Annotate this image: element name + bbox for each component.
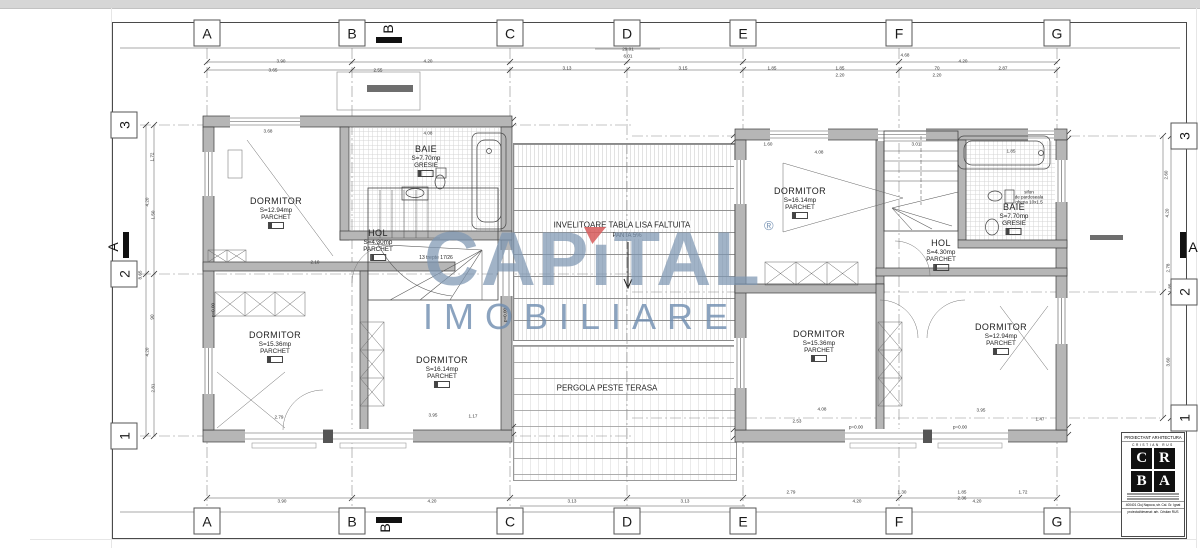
section-marker-a-left: A: [105, 242, 121, 251]
section-bar-left: [123, 232, 129, 258]
titleblock-microtext: [1126, 493, 1180, 500]
logo-letter-a: A: [1154, 471, 1175, 492]
section-marker-b-bottom: B: [377, 523, 393, 532]
logo-letter-r: R: [1154, 448, 1175, 469]
stairs-right: [884, 131, 958, 231]
watermark-cap-left: CAP: [424, 217, 590, 302]
crba-logo: C R B A: [1131, 448, 1175, 492]
section-bar-bottom: [376, 517, 402, 523]
section-marker-a-right: A: [1188, 239, 1197, 255]
section-bar-top: [376, 37, 402, 43]
titleblock-architect-name: CRISTIAN RUS: [1122, 443, 1184, 447]
title-block: PROIECTANT ARHITECTURA CRISTIAN RUS C R …: [1121, 432, 1185, 537]
section-marker-b-top: B: [380, 24, 396, 33]
registered-trademark-icon: ®: [764, 218, 774, 233]
floor-plan-sheet: 29.016.013.904.203.133.153.652.554.684.2…: [0, 0, 1200, 554]
titleblock-address: 400401 Cluj Napoca, str. Cal. Gr. Ignat: [1122, 501, 1184, 507]
section-bar-right: [1180, 232, 1186, 258]
logo-letter-b: B: [1131, 471, 1152, 492]
logo-letter-c: C: [1131, 448, 1152, 469]
titleblock-header: PROIECTANT ARHITECTURA: [1122, 433, 1184, 442]
watermark-cap-right: TAL: [614, 217, 762, 302]
watermark-imobiliare: IMOBILIARE: [423, 296, 739, 338]
titleblock-credit: proiectat/desenat: arh. Cristian RUS: [1122, 508, 1184, 514]
